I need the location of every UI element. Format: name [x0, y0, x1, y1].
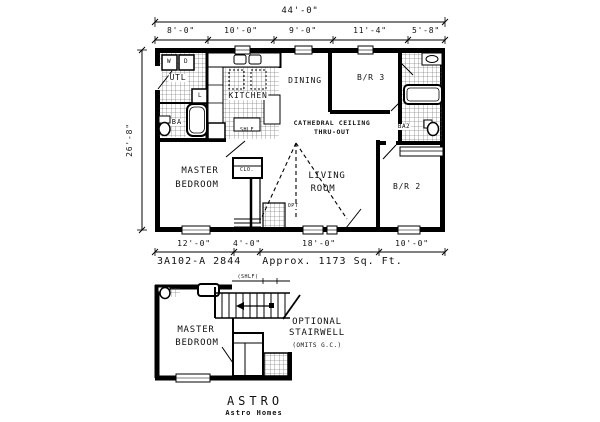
dim-bottom-seg-1: 12'-0" [177, 240, 211, 248]
lower-shelf-label: (SHLF) [236, 275, 259, 280]
dim-bottom-seg-4: 10'-0" [395, 240, 429, 248]
stairs-icon [215, 287, 300, 319]
dim-overall-width: 44'-0" [281, 7, 318, 16]
stairwell-note-line3: (OMITS G.C.) [292, 343, 341, 349]
entry-tile-hatch [264, 353, 288, 376]
room-label-living-line1: LIVING [308, 172, 345, 181]
floorplan-drawing [0, 0, 600, 422]
linen-label: L [198, 93, 202, 99]
dryer-label: D [184, 59, 188, 65]
toilet-icon [160, 288, 170, 299]
room-label-master-line2: BEDROOM [175, 181, 219, 190]
bedroom2-closet-shelf [400, 147, 443, 156]
stair-break-line [283, 295, 300, 319]
room-label-living-line2: ROOM [311, 185, 336, 194]
brand-name: Astro Homes [225, 410, 282, 417]
dim-left-height: 26'-8" [126, 123, 134, 157]
dim-top-seg-2: 10'-0" [224, 27, 258, 35]
room-label-utility: UTL [169, 74, 188, 82]
room-label-bedroom3: B/R 3 [357, 74, 385, 82]
ceiling-note-line2: THRU-OUT [314, 129, 350, 136]
dim-top-seg-1: 8'-0" [167, 27, 195, 35]
dim-bottom-seg-2: 4'-0" [233, 240, 261, 248]
model-name: ASTRO [227, 395, 283, 407]
ceiling-note-line1: CATHEDRAL CEILING [294, 120, 371, 127]
washer-label: W [167, 59, 171, 65]
windows [176, 374, 210, 382]
stairwell-note-line2: STAIRWELL [289, 329, 345, 338]
shelf-label: SHLF [240, 128, 254, 133]
dim-top-seg-3: 9'-0" [289, 27, 317, 35]
lower-master-line2: BEDROOM [175, 339, 219, 348]
stairwell-note-line1: OPTIONAL [292, 318, 342, 327]
room-label-bedroom2: B/R 2 [393, 183, 421, 191]
room-label-dining: DINING [288, 77, 322, 85]
lower-closet [222, 333, 263, 376]
toilet-icon [428, 123, 439, 136]
floorplan-page: 44'-0" 8'-0" 10'-0" 9'-0" 11'-4" 5'-8" 2… [0, 0, 600, 422]
kitchen-counter-left [208, 67, 223, 123]
sink-icon [234, 55, 246, 64]
room-label-bath1: BA [171, 119, 183, 126]
door-swing [222, 347, 233, 363]
opt-label: OPT [287, 204, 300, 209]
dim-top-seg-4: 11'-4" [353, 27, 387, 35]
fridge-icon [208, 123, 225, 139]
room-label-master-line1: MASTER [181, 167, 218, 176]
sink-icon [426, 56, 438, 63]
closet-label: CLO. [240, 168, 254, 173]
room-label-kitchen: KITCHEN [227, 92, 268, 100]
dim-bottom-seg-3: 18'-0" [302, 240, 336, 248]
room-label-bath2: BA2 [397, 124, 411, 130]
bathtub-icon [187, 104, 207, 136]
sink-icon [249, 55, 261, 64]
dim-top-seg-5: 5'-8" [412, 27, 440, 35]
plan-caption: 3A102-A 2844 Approx. 1173 Sq. Ft. [157, 257, 403, 267]
lower-master-line1: MASTER [177, 326, 214, 335]
toilet-icon [159, 123, 170, 136]
